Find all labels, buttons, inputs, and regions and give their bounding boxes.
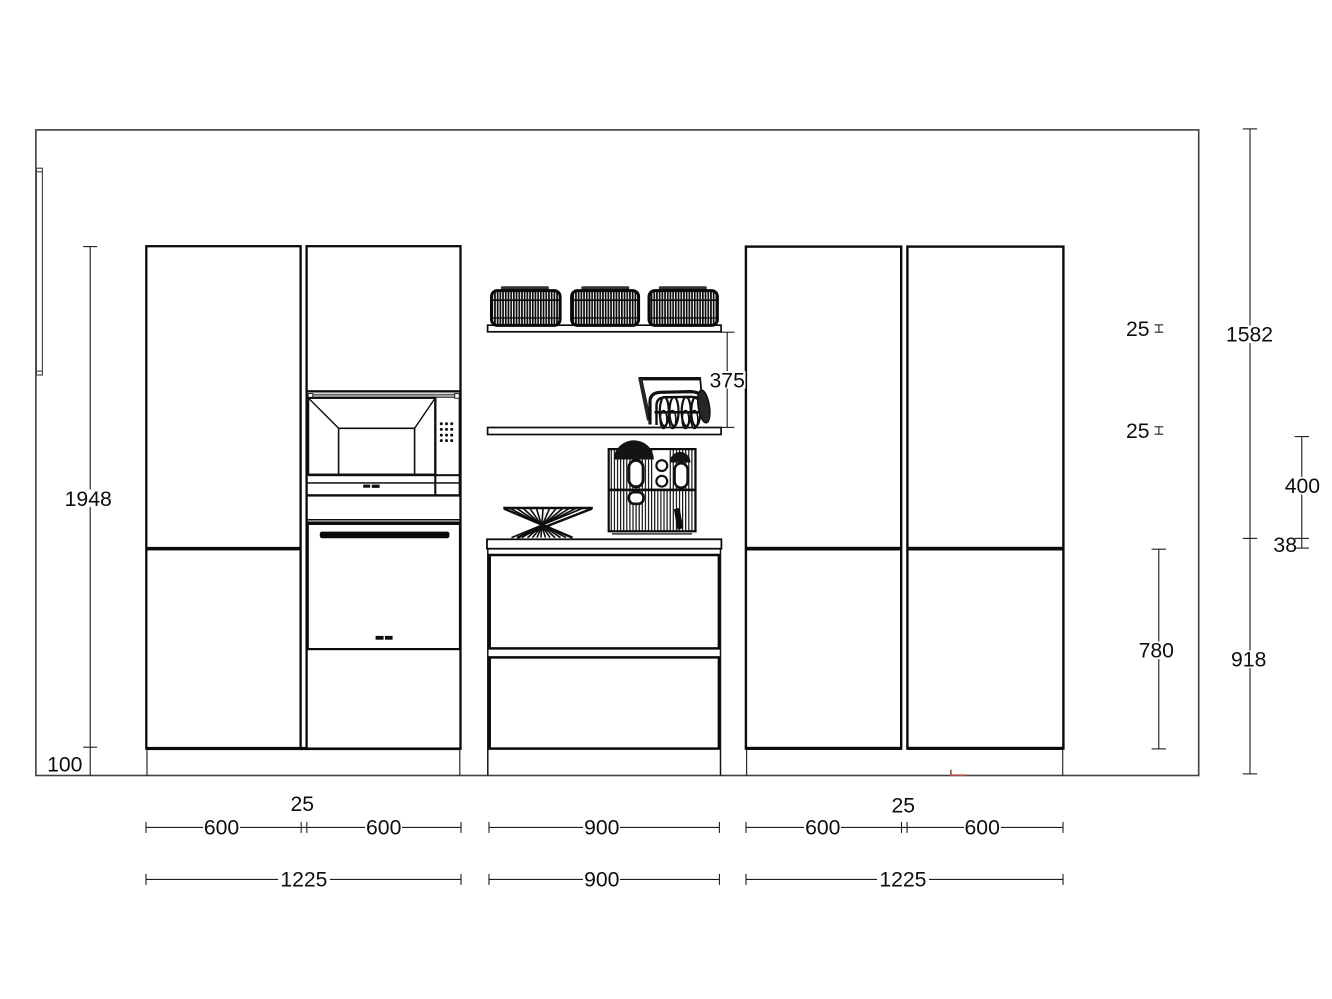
svg-text:1948: 1948 [65, 488, 112, 511]
svg-text:25: 25 [1126, 420, 1150, 443]
svg-text:600: 600 [965, 816, 1000, 839]
svg-text:100: 100 [47, 753, 82, 776]
svg-text:918: 918 [1231, 649, 1266, 672]
svg-text:1225: 1225 [879, 868, 926, 891]
svg-text:25: 25 [892, 795, 916, 818]
svg-text:780: 780 [1139, 639, 1174, 662]
svg-text:400: 400 [1285, 475, 1320, 498]
svg-text:600: 600 [204, 816, 239, 839]
svg-text:900: 900 [584, 816, 619, 839]
svg-text:900: 900 [584, 868, 619, 891]
svg-text:600: 600 [805, 816, 840, 839]
svg-text:1225: 1225 [280, 868, 327, 891]
svg-text:38: 38 [1273, 534, 1297, 557]
svg-text:1582: 1582 [1226, 324, 1273, 347]
svg-text:375: 375 [710, 370, 745, 393]
svg-text:25: 25 [291, 793, 315, 816]
svg-text:25: 25 [1126, 318, 1150, 341]
svg-text:600: 600 [366, 816, 401, 839]
